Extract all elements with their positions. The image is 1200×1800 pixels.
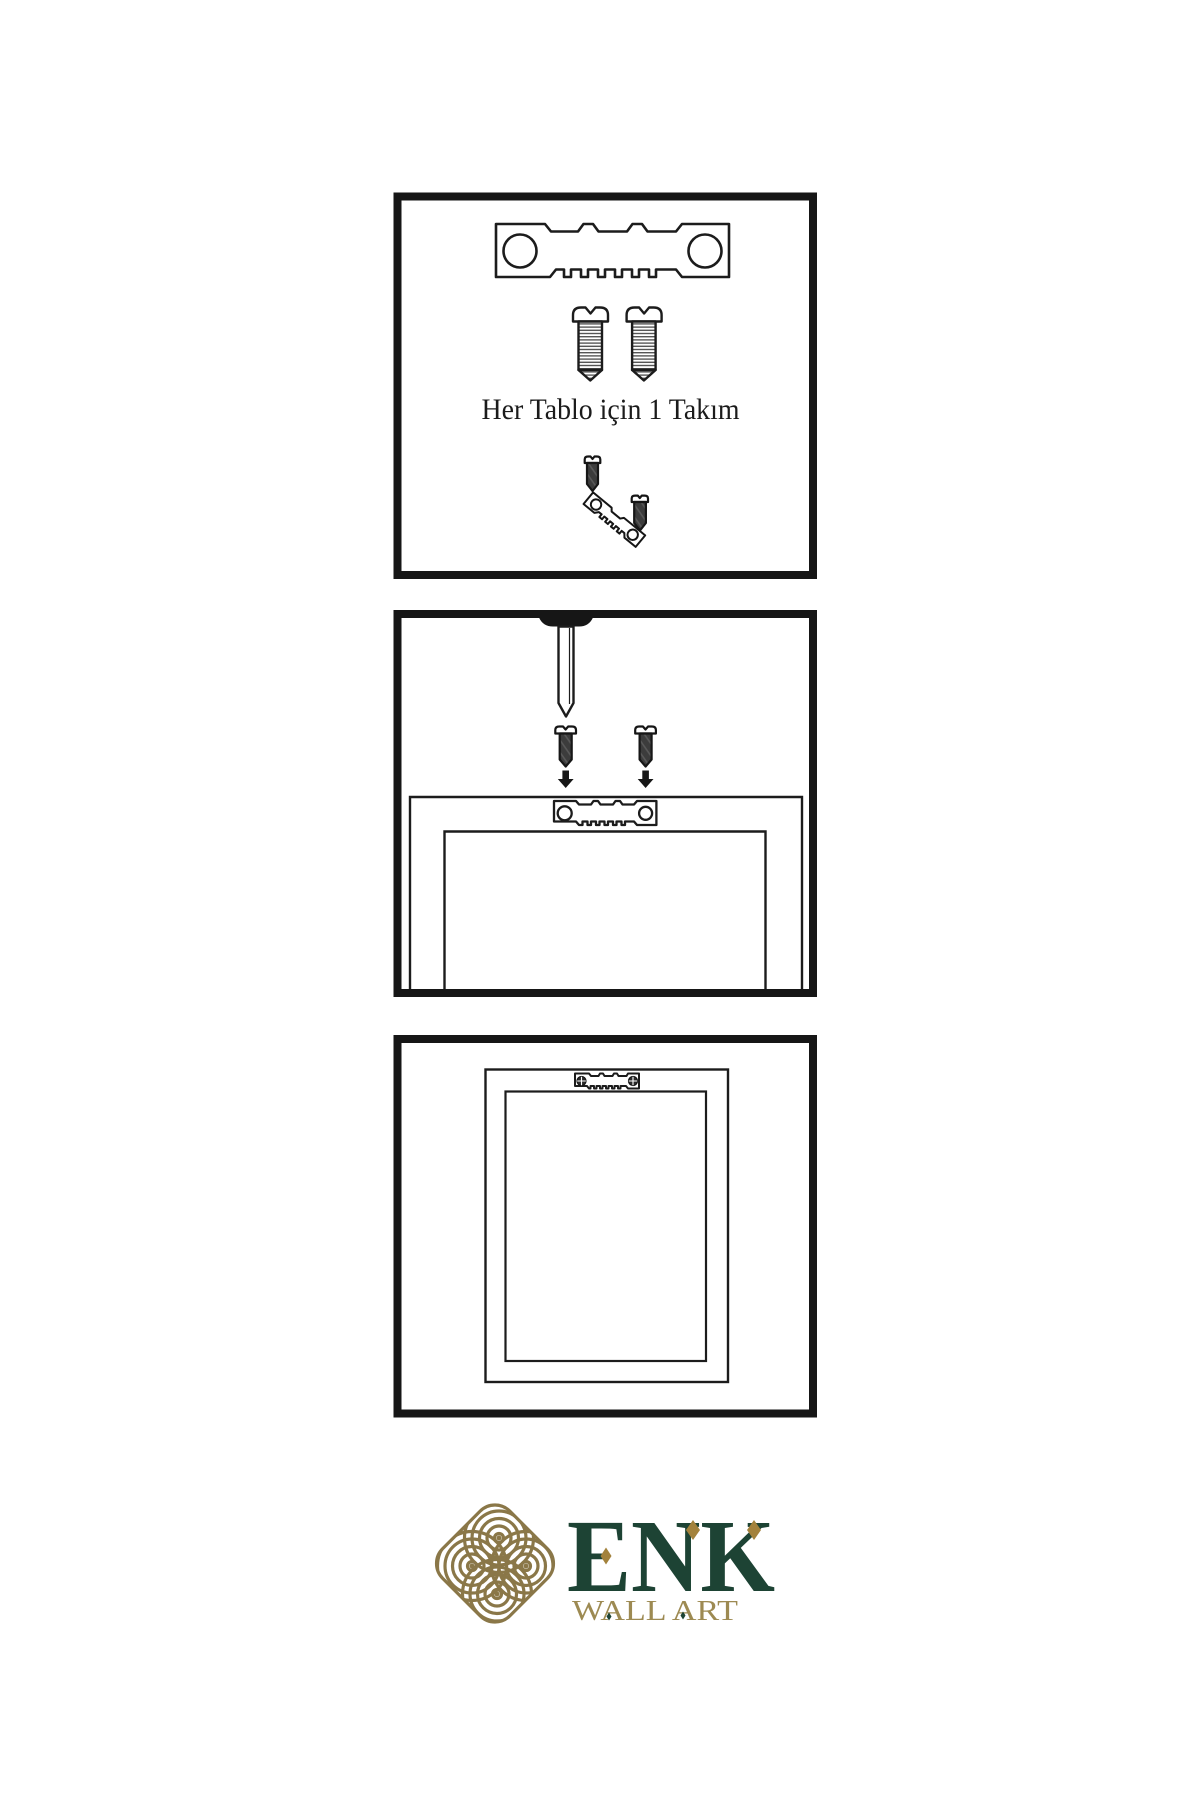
svg-text:WALL ART: WALL ART [572, 1595, 738, 1627]
svg-text:Her Tablo için 1 Takım: Her Tablo için 1 Takım [482, 393, 740, 426]
